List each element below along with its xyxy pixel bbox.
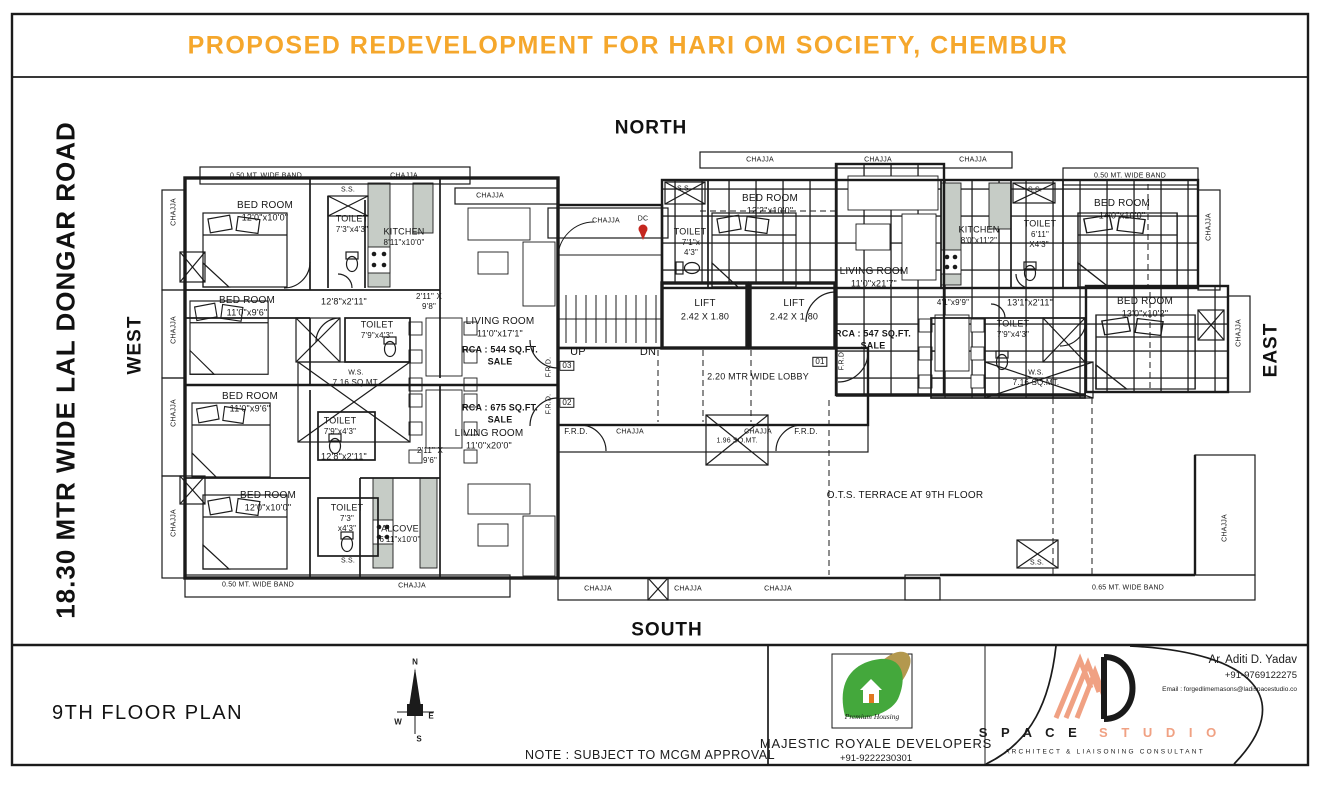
plan-label: 01: [812, 357, 827, 367]
plan-label: CHAJJA: [1205, 213, 1212, 241]
plan-label: 12'2"x10'0": [747, 206, 794, 215]
plan-label: 4'3": [684, 249, 698, 257]
plan-label: LIVING ROOM: [455, 429, 524, 440]
plan-label: CHAJJA: [584, 585, 612, 592]
space-studio-logo-icon: [1056, 657, 1133, 719]
plan-label: 11'0"x17'1": [477, 329, 523, 338]
plan-label: BED ROOM: [742, 194, 798, 205]
plan-label: CHAJJA: [390, 172, 418, 179]
road-label: 18.30 MTR WIDE LAL DONGAR ROAD: [52, 121, 81, 619]
plan-label: CHAJJA: [616, 428, 644, 435]
plan-label: UP: [570, 347, 586, 359]
plan-label: W.S.: [348, 369, 364, 376]
plan-label: 2.42 X 1.80: [681, 312, 729, 321]
plan-label: S.S.: [341, 186, 355, 193]
developer-tagline: Premium Housing: [845, 713, 900, 721]
developer-name: MAJESTIC ROYALE DEVELOPERS: [760, 737, 992, 751]
plan-label: 12'0"x10'0": [245, 503, 292, 512]
plan-label: 1.96 SQ.MT.: [716, 437, 757, 444]
plan-label: KITCHEN: [384, 227, 425, 236]
sheet-title: PROPOSED REDEVELOPMENT FOR HARI OM SOCIE…: [188, 32, 1069, 60]
plan-label: SALE: [488, 357, 513, 366]
plan-label: 13'0"x10'2": [1122, 309, 1169, 318]
plan-label: 11'0"x9'6": [227, 308, 268, 317]
plan-label: 7'9"x4'3": [361, 332, 393, 340]
plan-label: 2'11" X: [417, 447, 443, 455]
plan-label: F.R.D.: [838, 350, 845, 371]
plan-label: CHAJJA: [764, 585, 792, 592]
plan-label: BED ROOM: [237, 201, 293, 212]
plan-label: 8'0"x11'2": [961, 237, 997, 245]
plan-label: CHAJJA: [674, 585, 702, 592]
plan-label: CHAJJA: [1221, 514, 1228, 542]
plan-label: CHAJJA: [170, 316, 177, 344]
plan-label: F.R.D.: [545, 394, 552, 415]
plan-label: X4'3": [1029, 241, 1049, 249]
plan-label: F.R.D.: [545, 357, 552, 378]
plan-label: CHAJJA: [744, 428, 772, 435]
plan-label: 0.65 MT. WIDE BAND: [1092, 584, 1164, 591]
plan-label: CHAJJA: [476, 192, 504, 199]
studio-name-space: S P A C E: [979, 725, 1082, 740]
plan-label: LIVING ROOM: [466, 317, 535, 328]
plan-label: TOILET: [324, 416, 357, 425]
plan-label: 2.42 X 1.80: [770, 312, 818, 321]
plan-label: DN: [640, 347, 656, 359]
plan-label: F.R.D.: [794, 428, 817, 436]
plan-label: SALE: [488, 415, 513, 424]
direction-south: SOUTH: [631, 621, 703, 642]
plan-label: CHAJJA: [864, 156, 892, 163]
plan-label: 2.20 MTR WIDE LOBBY: [707, 372, 809, 381]
plan-label: SALE: [861, 341, 886, 350]
compass-s-label: S: [416, 736, 421, 745]
plan-label: TOILET: [997, 319, 1030, 328]
plan-label: 12'8"x2'11": [321, 297, 367, 306]
plan-label: TOILET: [1024, 219, 1057, 228]
plan-label: 7'3": [340, 515, 354, 523]
plan-label: 03: [559, 361, 574, 371]
plan-label: S.S.: [1030, 559, 1044, 566]
compass-icon: [397, 668, 434, 734]
plan-label: TOILET: [331, 503, 364, 512]
plan-label: 12'0"x10'0": [242, 213, 289, 222]
plan-label: LIFT: [783, 299, 804, 310]
plan-label: S.S.: [1028, 186, 1042, 193]
studio-subtitle: ARCHITECT & LIAISONING CONSULTANT: [1005, 748, 1205, 755]
plan-label: W.S.: [1028, 369, 1044, 376]
plan-label: CHAJJA: [959, 156, 987, 163]
plan-label: RCA : 675 SQ.FT.: [462, 403, 538, 412]
plan-label: LIVING ROOM: [840, 267, 909, 278]
plan-label: 9'8": [422, 303, 436, 311]
compass-w-label: W: [394, 719, 402, 728]
direction-east: EAST: [1262, 323, 1283, 378]
plan-label: CHAJJA: [592, 217, 620, 224]
compass-n-label: N: [412, 659, 418, 668]
studio-name: S P A C E S T U D I O: [979, 726, 1221, 740]
direction-north: NORTH: [615, 119, 688, 140]
plan-label: CHAJJA: [746, 156, 774, 163]
plan-label: x4'3": [338, 525, 356, 533]
plan-label: 14'0"x10'0": [1099, 211, 1146, 220]
plan-label: ALCOVE: [381, 524, 419, 533]
plan-label: 7'9"x4'3": [997, 331, 1029, 339]
plan-label: CHAJJA: [170, 198, 177, 226]
plan-label: 02: [559, 398, 574, 408]
plan-label: 6'11"x10'0": [379, 536, 420, 544]
plan-label: 0.50 MT. WIDE BAND: [230, 172, 302, 179]
plan-label: KITCHEN: [959, 225, 1000, 234]
plan-label: 4'1"x9'9": [937, 299, 969, 307]
plan-label: TOILET: [674, 227, 707, 236]
plan-label: F.R.D.: [564, 428, 587, 436]
plan-label: 7.16 SQ.MT.: [333, 379, 380, 387]
studio-name-studio: S T U D I O: [1099, 725, 1221, 740]
plan-label: BED ROOM: [1094, 199, 1150, 210]
architect-email: Email : forgedlimemasons@ladispacestudio…: [1162, 686, 1297, 693]
plan-label: S.S.: [341, 557, 355, 564]
plan-label: 2'11" X: [416, 293, 442, 301]
plan-label: CHAJJA: [398, 582, 426, 589]
plan-label: 11'0"x20'0": [466, 441, 512, 450]
plan-label: S.S.: [677, 185, 691, 192]
plan-label: O.T.S. TERRACE AT 9TH FLOOR: [827, 491, 984, 502]
developer-phone: +91-9222230301: [840, 754, 912, 764]
plan-label: 9'6": [423, 457, 437, 465]
plan-label: BED ROOM: [222, 392, 278, 403]
plan-label: 0.50 MT. WIDE BAND: [1094, 172, 1166, 179]
plan-title: 9TH FLOOR PLAN: [52, 702, 243, 724]
plan-label: 12'8"x2'11": [321, 452, 367, 461]
plan-label: BED ROOM: [1117, 297, 1173, 308]
plan-label: LIFT: [694, 299, 715, 310]
plan-label: 8'11"x10'0": [383, 239, 424, 247]
floor-plan-sheet: PROPOSED REDEVELOPMENT FOR HARI OM SOCIE…: [0, 0, 1320, 789]
plan-label: TOILET: [336, 214, 369, 223]
plan-label: DC: [638, 215, 649, 222]
plan-label: 7.16 SQ.MT.: [1013, 379, 1060, 387]
architect-phone: +91-9769122275: [1225, 671, 1297, 681]
plan-label: 7'1"x: [682, 239, 700, 247]
plan-label: CHAJJA: [1235, 319, 1242, 347]
plan-label: 6'11": [1031, 231, 1049, 239]
plan-label: BED ROOM: [219, 296, 275, 307]
direction-west: WEST: [126, 316, 147, 375]
plan-label: CHAJJA: [170, 399, 177, 427]
plan-label: BED ROOM: [240, 491, 296, 502]
plan-label: 7'3"x4'3": [336, 226, 368, 234]
plan-label: 13'1"x2'11": [1007, 298, 1053, 307]
plan-label: RCA : 544 SQ.FT.: [462, 345, 538, 354]
architect-name: Ar. Aditi D. Yadav: [1209, 654, 1297, 667]
plan-label: 7'9"x4'3": [324, 428, 356, 436]
plan-label: 11'0"x21'7": [851, 279, 897, 288]
approval-note: NOTE : SUBJECT TO MCGM APPROVAL: [525, 749, 775, 763]
compass-e-label: E: [428, 713, 433, 722]
plan-label: RCA : 547 SQ.FT.: [835, 329, 911, 338]
plan-label: 11'0"x9'6": [230, 404, 271, 413]
plan-label: 0.50 MT. WIDE BAND: [222, 581, 294, 588]
staircase-icon: [558, 222, 662, 343]
plan-label: TOILET: [361, 320, 394, 329]
plan-label: CHAJJA: [170, 509, 177, 537]
